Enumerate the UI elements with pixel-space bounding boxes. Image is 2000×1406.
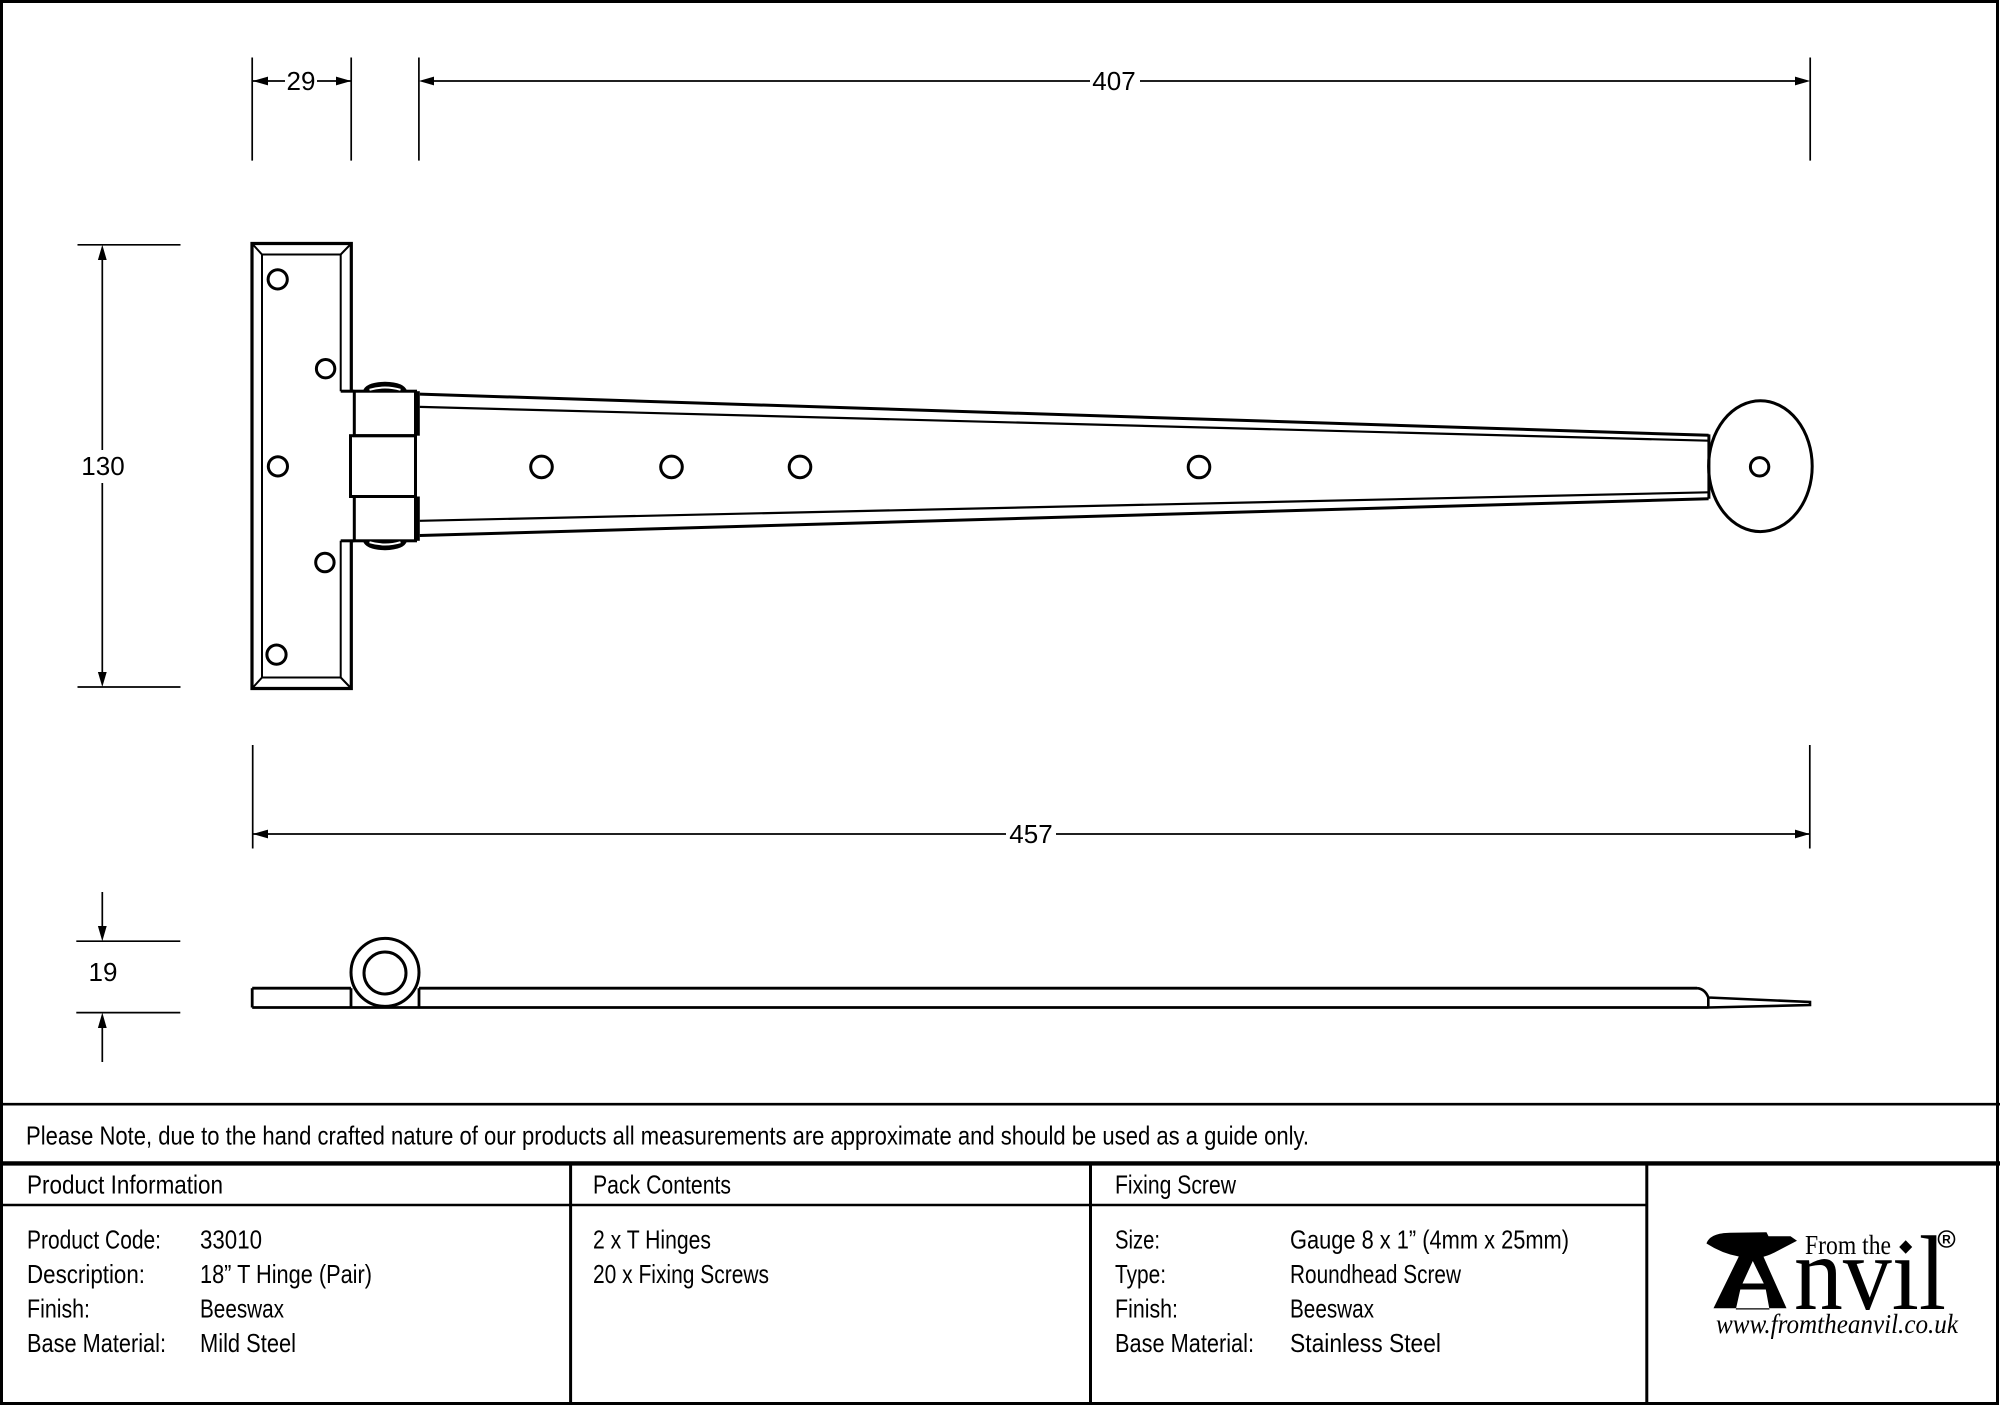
svg-text:www.fromtheanvil.co.uk: www.fromtheanvil.co.uk [1716, 1309, 1959, 1339]
svg-text:29: 29 [287, 66, 316, 96]
svg-text:Roundhead Screw: Roundhead Screw [1290, 1259, 1461, 1289]
svg-text:Mild Steel: Mild Steel [200, 1328, 296, 1358]
svg-text:Product Code:: Product Code: [27, 1225, 161, 1255]
svg-text:Please Note, due to the hand c: Please Note, due to the hand crafted nat… [26, 1121, 1309, 1151]
svg-text:R: R [1942, 1232, 1951, 1246]
svg-text:Stainless Steel: Stainless Steel [1290, 1328, 1441, 1358]
svg-text:2 x T Hinges: 2 x T Hinges [593, 1225, 711, 1255]
svg-text:19: 19 [89, 957, 118, 987]
svg-text:Base Material:: Base Material: [1115, 1328, 1254, 1358]
svg-text:Product Information: Product Information [27, 1170, 223, 1200]
svg-text:Beeswax: Beeswax [200, 1294, 284, 1324]
svg-text:Pack Contents: Pack Contents [593, 1170, 731, 1200]
svg-text:Size:: Size: [1115, 1225, 1160, 1255]
svg-text:Fixing Screw: Fixing Screw [1115, 1170, 1236, 1200]
svg-text:Base Material:: Base Material: [27, 1328, 166, 1358]
svg-text:Description:: Description: [27, 1259, 145, 1289]
svg-text:130: 130 [81, 451, 124, 481]
svg-text:33010: 33010 [200, 1225, 262, 1255]
svg-text:Type:: Type: [1115, 1259, 1166, 1289]
svg-text:Finish:: Finish: [1115, 1294, 1178, 1324]
svg-text:Beeswax: Beeswax [1290, 1294, 1374, 1324]
svg-text:20 x Fixing Screws: 20 x Fixing Screws [593, 1259, 769, 1289]
svg-text:18” T Hinge (Pair): 18” T Hinge (Pair) [200, 1259, 372, 1289]
svg-text:Gauge 8 x 1” (4mm x 25mm): Gauge 8 x 1” (4mm x 25mm) [1290, 1225, 1569, 1255]
svg-text:Finish:: Finish: [27, 1294, 90, 1324]
svg-text:407: 407 [1092, 66, 1135, 96]
svg-text:457: 457 [1009, 819, 1052, 849]
